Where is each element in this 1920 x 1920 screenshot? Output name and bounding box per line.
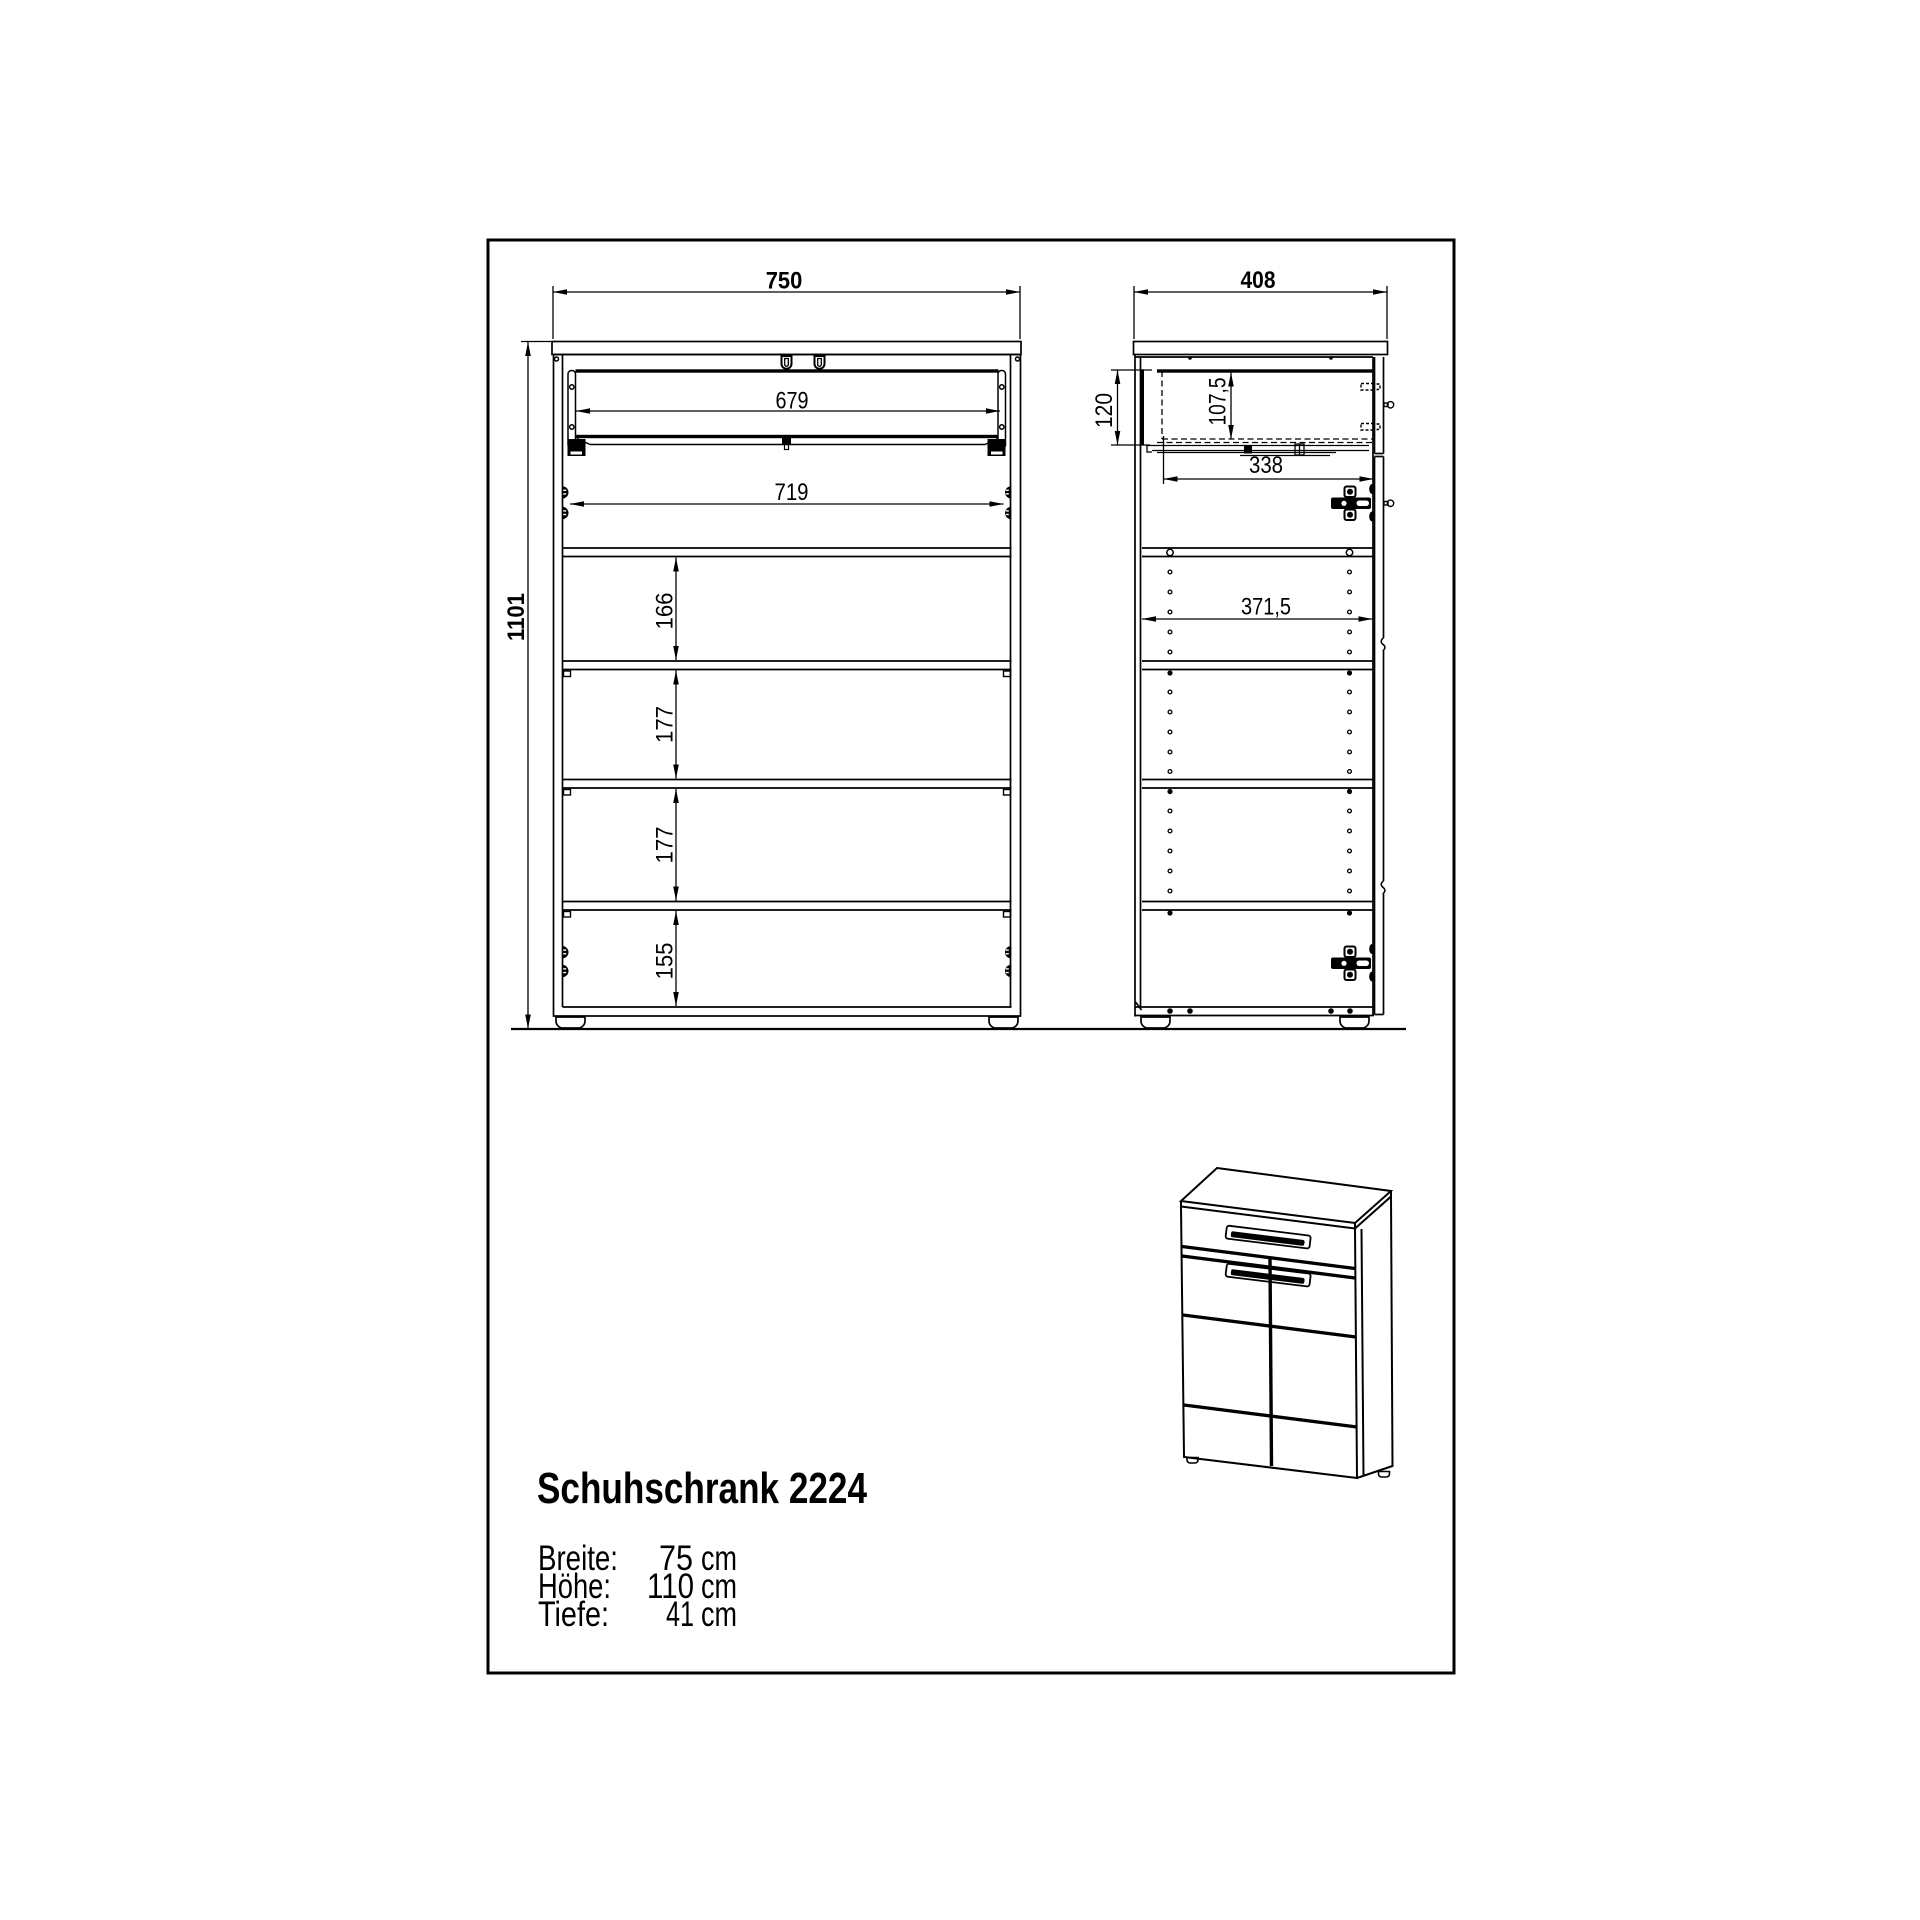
svg-text:408: 408 <box>1241 267 1276 294</box>
svg-text:719: 719 <box>775 479 809 506</box>
svg-text:41: 41 <box>666 1595 694 1634</box>
svg-text:155: 155 <box>652 943 679 980</box>
svg-text:1101: 1101 <box>503 593 530 641</box>
svg-text:166: 166 <box>652 593 679 630</box>
svg-text:177: 177 <box>652 706 679 743</box>
svg-text:177: 177 <box>652 827 679 864</box>
svg-text:cm: cm <box>701 1595 737 1634</box>
svg-text:679: 679 <box>776 388 809 415</box>
svg-text:107,5: 107,5 <box>1205 378 1232 426</box>
svg-text:120: 120 <box>1091 393 1118 428</box>
svg-text:750: 750 <box>766 268 803 295</box>
svg-text:338: 338 <box>1249 452 1283 479</box>
svg-text:371,5: 371,5 <box>1241 594 1291 621</box>
svg-text:Tiefe:: Tiefe: <box>538 1595 609 1634</box>
svg-text:Schuhschrank 2224: Schuhschrank 2224 <box>537 1464 867 1513</box>
